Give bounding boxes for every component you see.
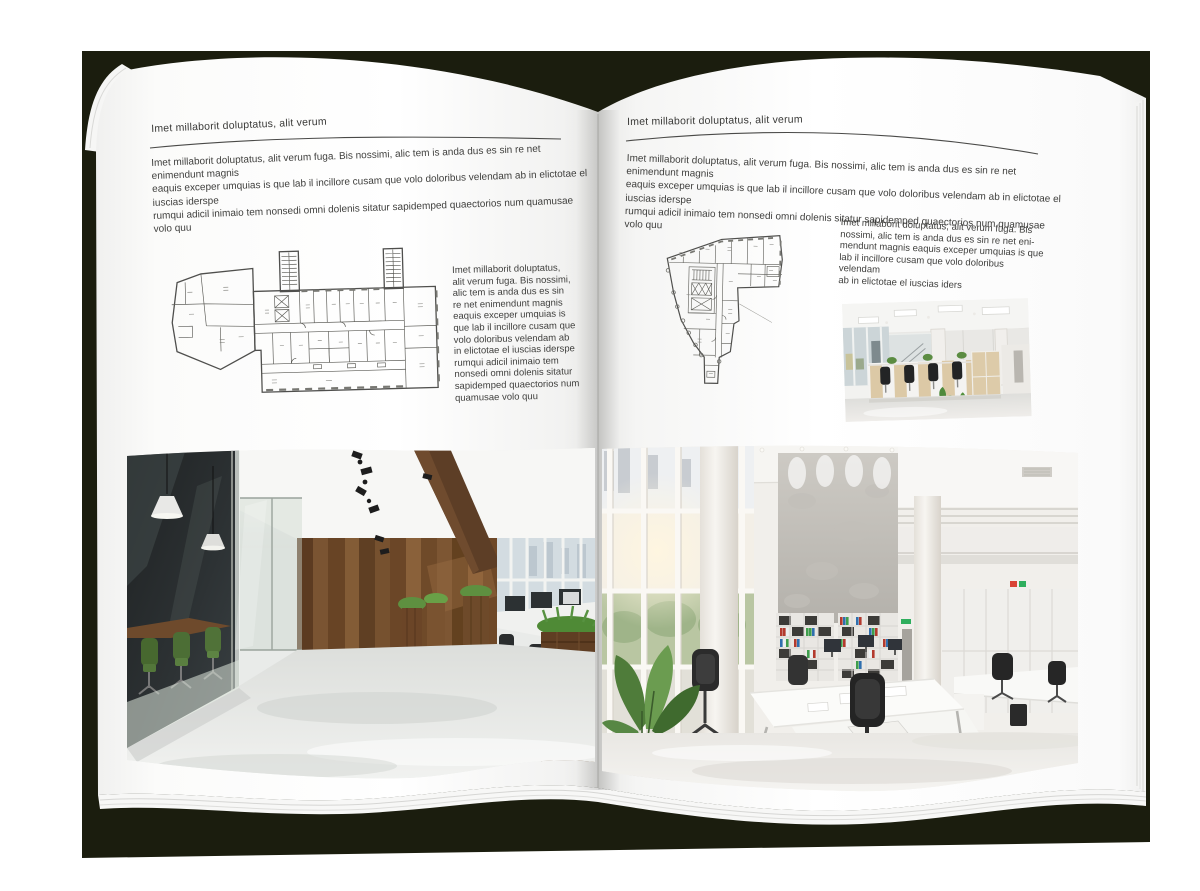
left-page-side-text: Imet millaborit doluptatus, alit verum f… <box>452 262 595 404</box>
left-page-intro: Imet millaborit doluptatus, alit verum f… <box>151 141 590 236</box>
right-floor-plan <box>648 224 804 417</box>
right-office-photo <box>602 441 1078 793</box>
right-page-header: Imet millaborit doluptatus, alit verum <box>627 114 803 128</box>
small-office-photo <box>842 298 1032 422</box>
right-page-side-text: Imet millaborit doluptatus, alit verum f… <box>838 217 1049 295</box>
left-office-photo <box>127 446 595 780</box>
left-floor-plan <box>162 235 442 405</box>
magazine-mockup: Imet millaborit doluptatus, alit verum I… <box>0 0 1200 891</box>
